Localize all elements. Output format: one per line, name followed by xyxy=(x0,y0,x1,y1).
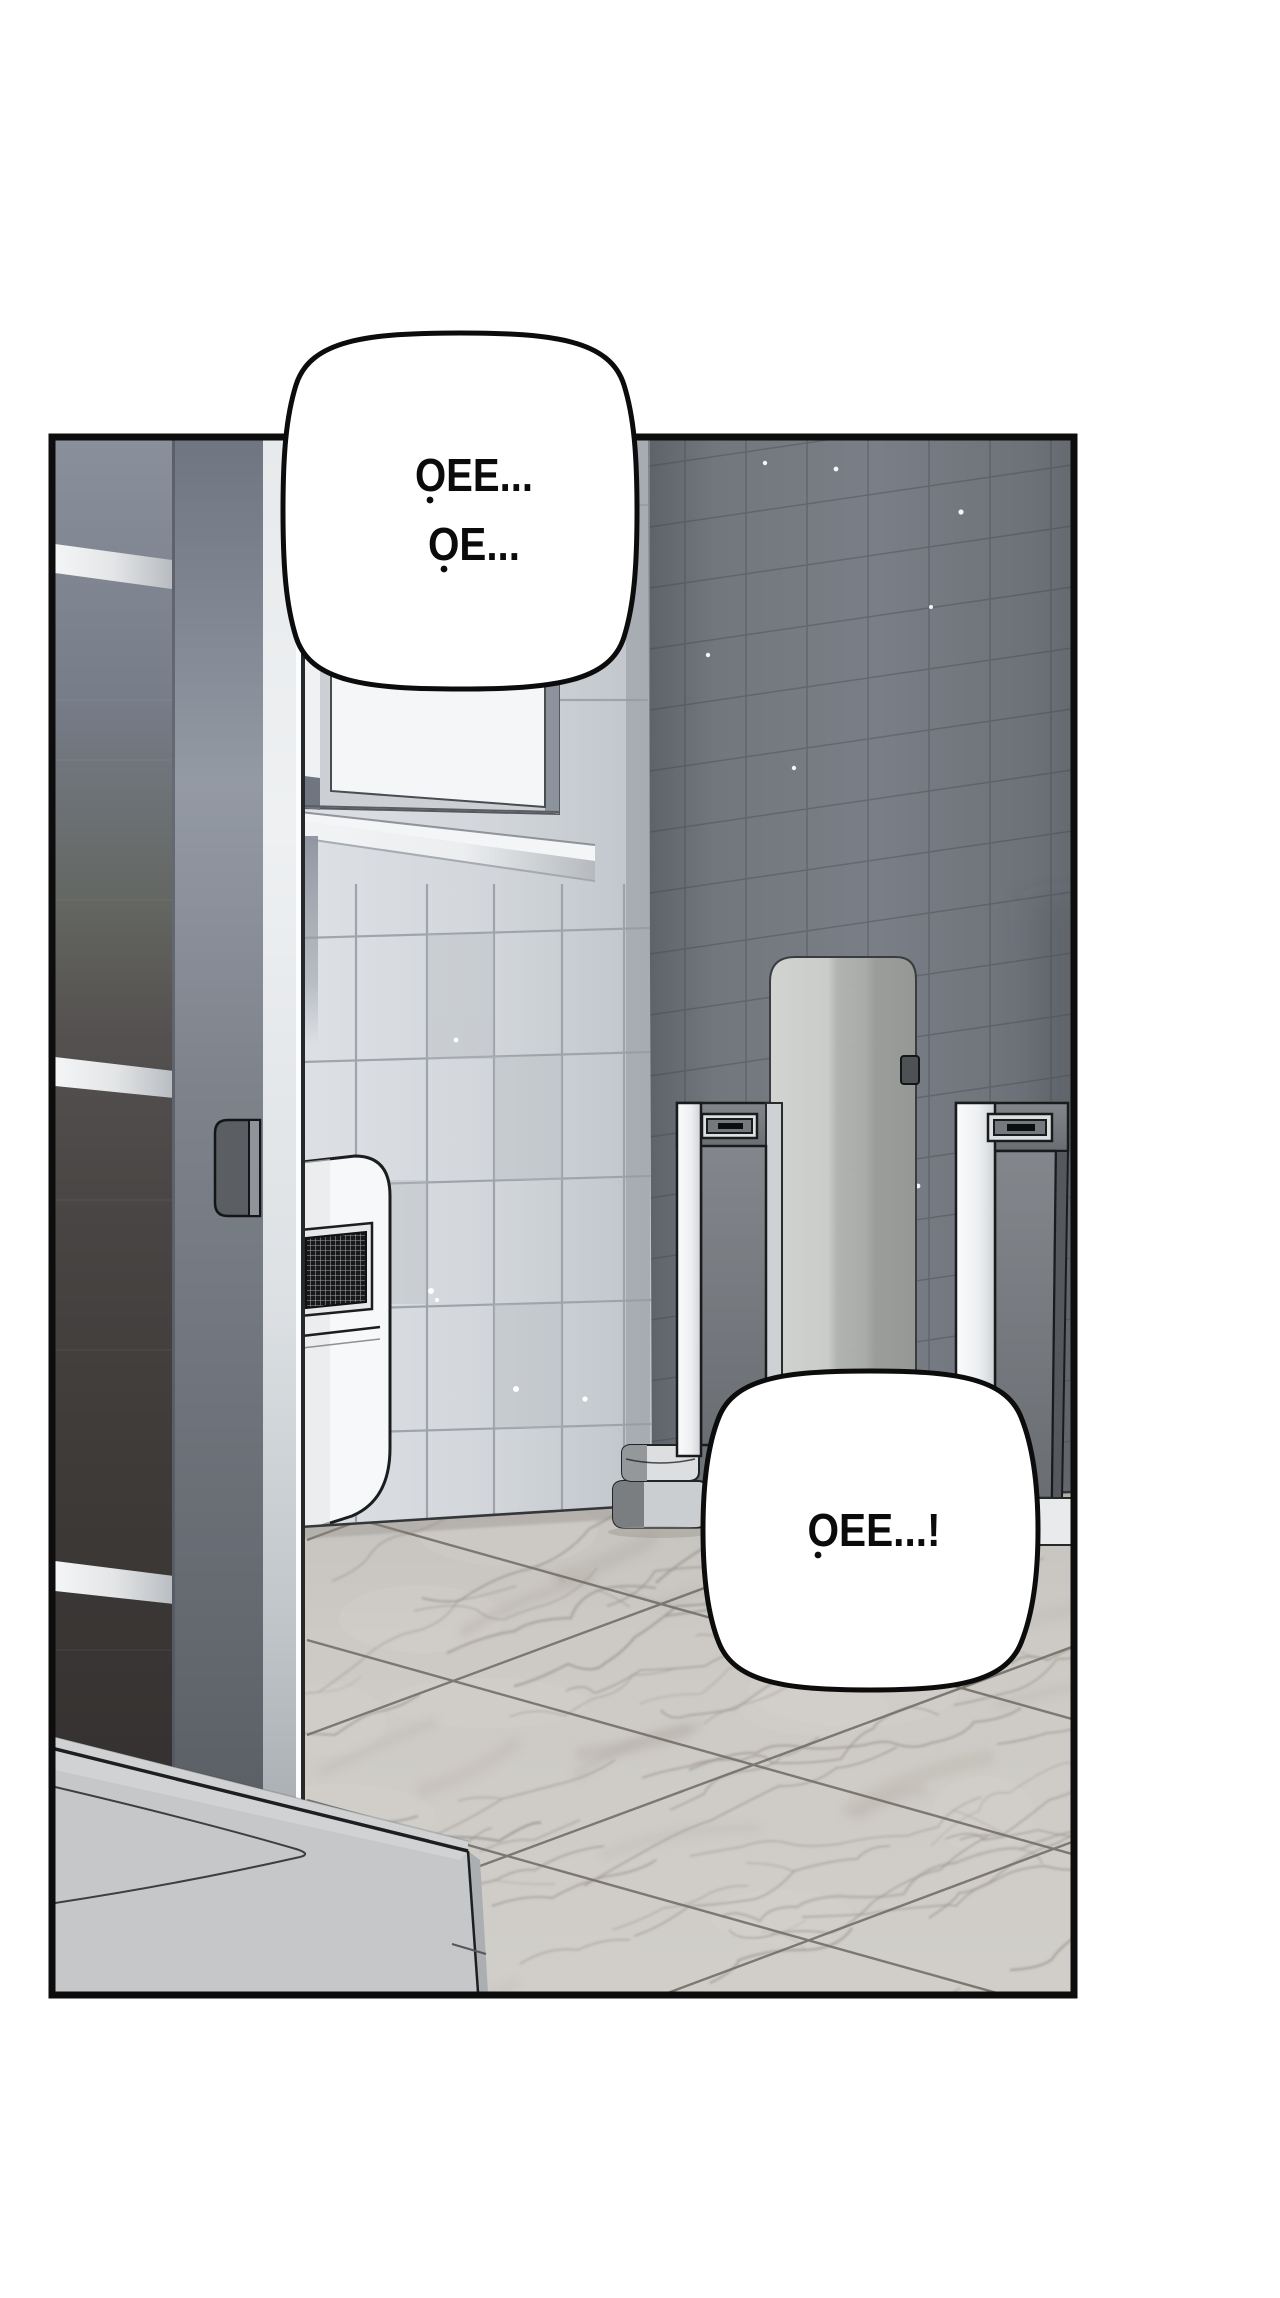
svg-text:OE...: OE... xyxy=(428,518,520,570)
svg-text:OEE...: OEE... xyxy=(415,449,533,501)
svg-text:OEE...!: OEE...! xyxy=(808,1504,941,1556)
